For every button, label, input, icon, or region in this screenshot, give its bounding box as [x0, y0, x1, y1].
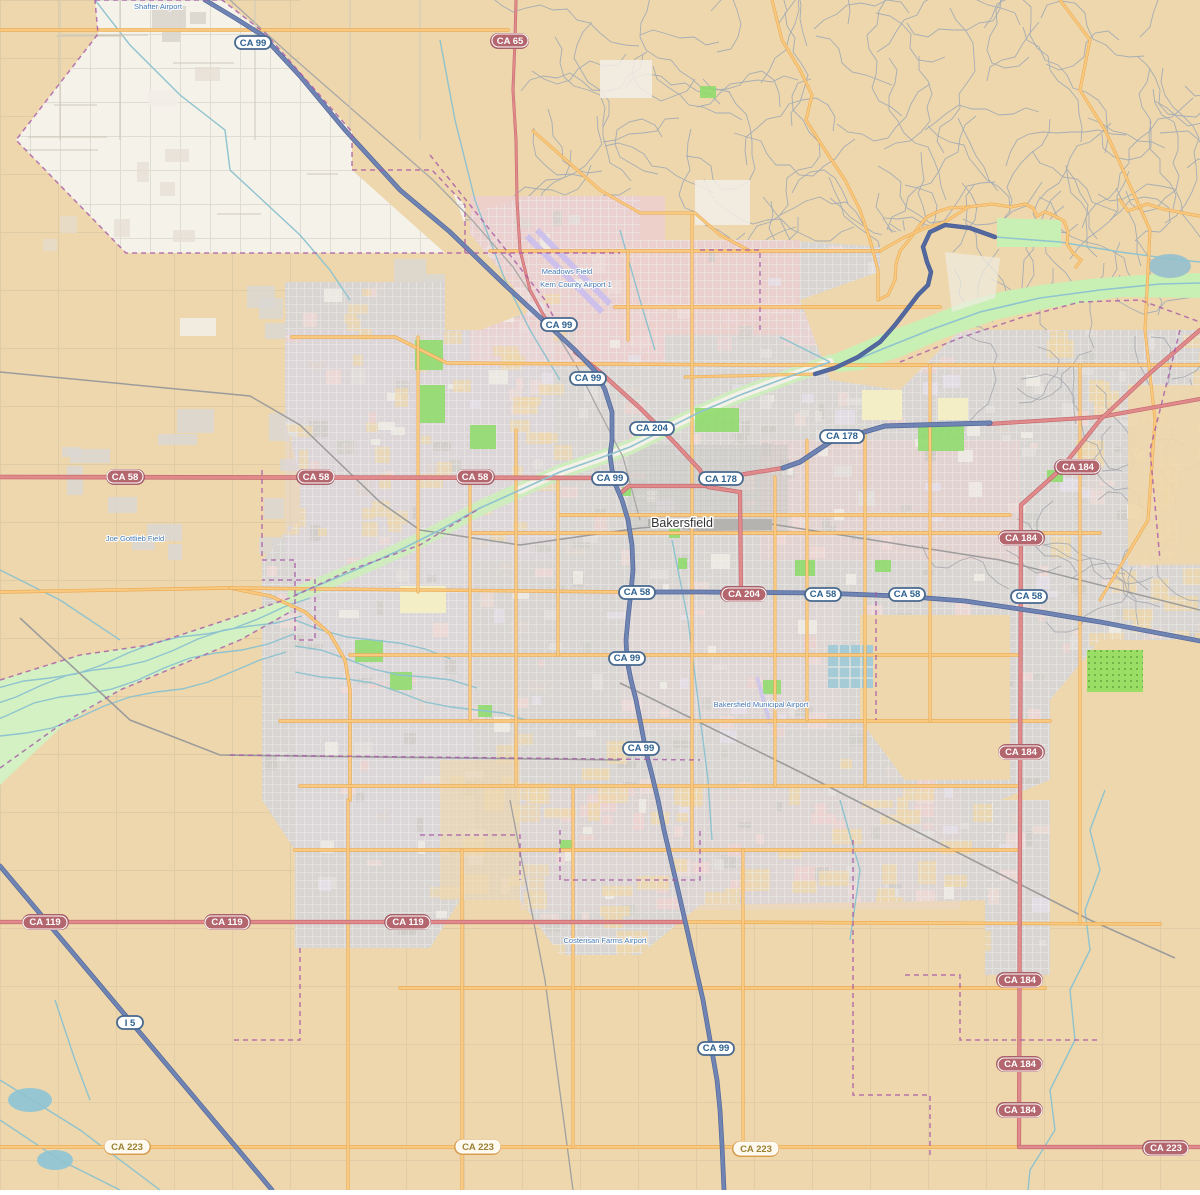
svg-text:CA 99: CA 99 — [614, 653, 641, 664]
svg-text:CA 119: CA 119 — [392, 917, 423, 928]
svg-text:Bakersfield: Bakersfield — [651, 516, 713, 530]
svg-text:CA 65: CA 65 — [497, 36, 524, 47]
svg-text:CA 99: CA 99 — [597, 473, 624, 484]
svg-text:Costerisan Farms Airport: Costerisan Farms Airport — [564, 936, 648, 945]
svg-text:CA 99: CA 99 — [240, 38, 267, 49]
svg-text:CA 58: CA 58 — [303, 472, 330, 483]
svg-text:CA 119: CA 119 — [211, 917, 242, 928]
svg-text:CA 223: CA 223 — [1150, 1143, 1182, 1154]
svg-text:CA 58: CA 58 — [112, 472, 139, 483]
svg-text:Joe Gottlieb Field: Joe Gottlieb Field — [106, 534, 164, 543]
svg-text:CA 204: CA 204 — [728, 589, 761, 600]
svg-text:Meadows Field: Meadows Field — [542, 267, 592, 276]
svg-text:CA 184: CA 184 — [1004, 1059, 1037, 1070]
svg-text:CA 223: CA 223 — [462, 1142, 494, 1153]
svg-text:I 5: I 5 — [125, 1018, 136, 1029]
svg-text:CA 58: CA 58 — [462, 472, 489, 483]
svg-text:CA 99: CA 99 — [546, 320, 573, 331]
svg-text:CA 99: CA 99 — [703, 1043, 730, 1054]
svg-text:CA 184: CA 184 — [1005, 747, 1038, 758]
svg-text:CA 99: CA 99 — [575, 373, 602, 384]
svg-text:CA 178: CA 178 — [705, 474, 737, 485]
svg-text:CA 99: CA 99 — [628, 743, 655, 754]
svg-text:CA 184: CA 184 — [1005, 533, 1038, 544]
svg-text:CA 204: CA 204 — [636, 423, 669, 434]
svg-text:CA 178: CA 178 — [826, 431, 858, 442]
svg-text:CA 58: CA 58 — [1016, 591, 1043, 602]
svg-text:CA 223: CA 223 — [740, 1144, 772, 1155]
svg-text:CA 119: CA 119 — [29, 917, 60, 928]
svg-text:CA 184: CA 184 — [1004, 975, 1037, 986]
svg-text:CA 184: CA 184 — [1004, 1105, 1037, 1116]
svg-text:Shafter Airport: Shafter Airport — [134, 2, 183, 11]
svg-text:CA 223: CA 223 — [111, 1142, 143, 1153]
svg-text:CA 58: CA 58 — [810, 589, 837, 600]
svg-text:CA 184: CA 184 — [1062, 462, 1095, 473]
svg-text:CA 58: CA 58 — [624, 587, 651, 598]
svg-text:Kern County Airport 1: Kern County Airport 1 — [540, 280, 612, 289]
svg-text:CA 58: CA 58 — [894, 589, 921, 600]
svg-text:Bakersfield Municipal Airport: Bakersfield Municipal Airport — [714, 700, 810, 709]
